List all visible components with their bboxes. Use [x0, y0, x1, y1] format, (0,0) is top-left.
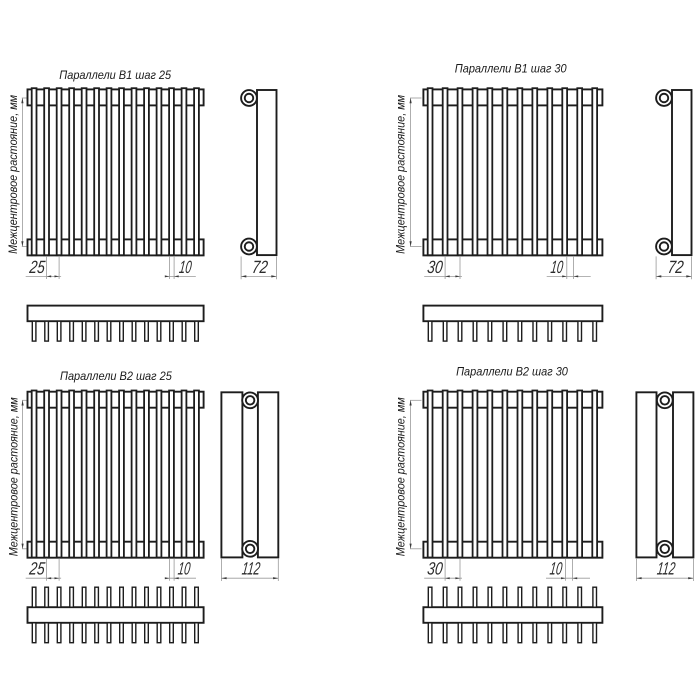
svg-text:72: 72	[251, 257, 269, 277]
svg-text:30: 30	[426, 558, 444, 578]
svg-text:Межцентровое растояние, мм: Межцентровое растояние, мм	[6, 95, 20, 254]
svg-text:Параллели В2 шаг 25: Параллели В2 шаг 25	[60, 370, 172, 383]
svg-text:Параллели В2 шаг 30: Параллели В2 шаг 30	[456, 365, 568, 378]
svg-text:72: 72	[667, 257, 685, 277]
svg-text:Межцентровое растояние, мм: Межцентровое растояние, мм	[393, 397, 407, 556]
svg-text:Параллели В1 шаг 25: Параллели В1 шаг 25	[59, 69, 171, 82]
svg-text:10: 10	[177, 558, 192, 578]
svg-text:10: 10	[178, 257, 193, 277]
svg-text:112: 112	[656, 558, 676, 578]
svg-text:25: 25	[28, 257, 46, 277]
svg-text:Межцентровое растояние, мм: Межцентровое растояние, мм	[393, 95, 407, 254]
svg-text:10: 10	[550, 257, 565, 277]
svg-text:112: 112	[241, 558, 261, 578]
svg-text:10: 10	[549, 558, 564, 578]
svg-text:25: 25	[28, 558, 46, 578]
svg-text:30: 30	[426, 257, 444, 277]
svg-text:Параллели В1 шаг 30: Параллели В1 шаг 30	[455, 63, 567, 76]
svg-text:Межцентровое растояние, мм: Межцентровое растояние, мм	[6, 397, 20, 556]
